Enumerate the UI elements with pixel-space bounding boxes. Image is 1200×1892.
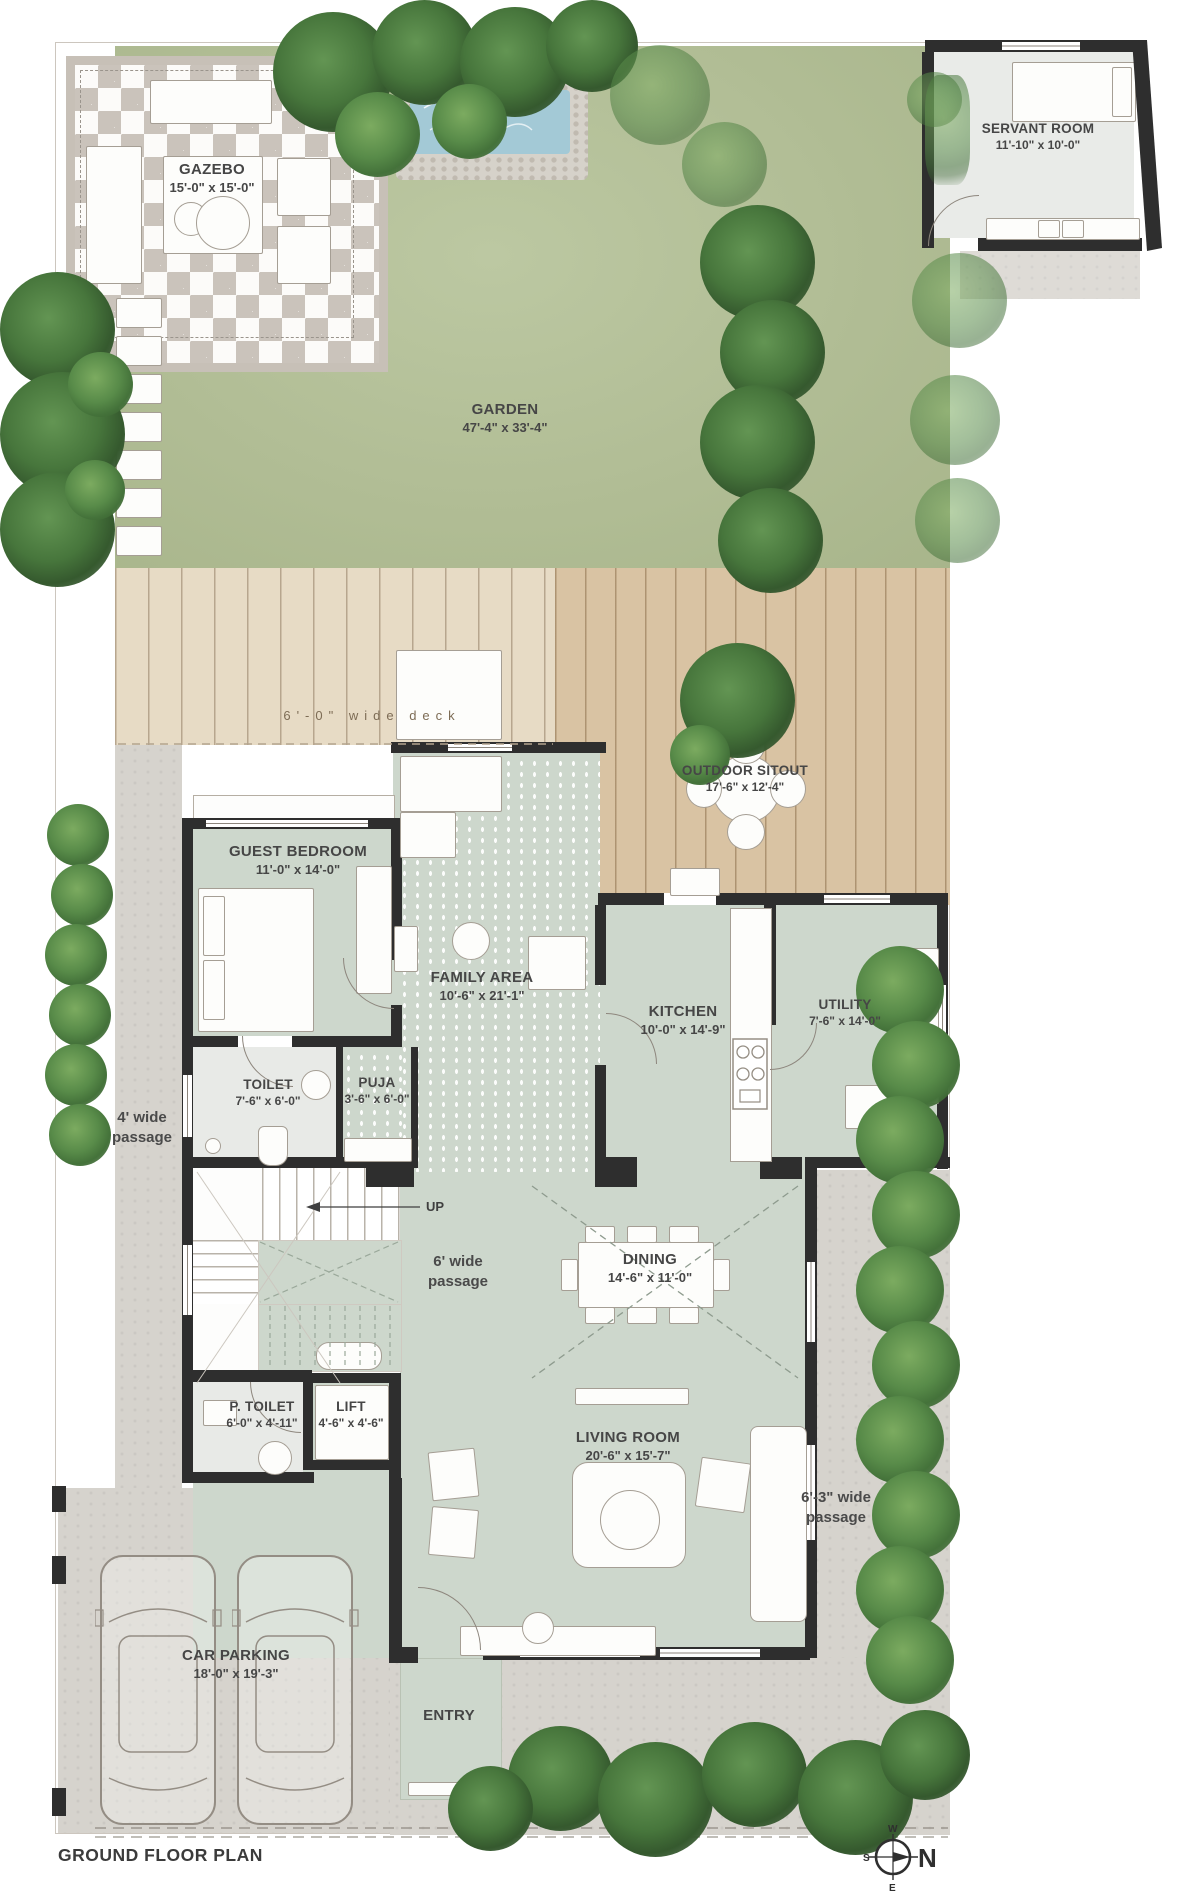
label-deck: 6'-0" wide deck [283, 708, 460, 723]
label-entry: ENTRY [423, 1706, 475, 1726]
label-p-toilet: P. TOILET 6'-0" x 4'-11" [226, 1398, 297, 1431]
hedge-icon [856, 1246, 944, 1334]
window-seat [460, 1626, 656, 1656]
label-up: UP [426, 1199, 444, 1214]
label-gazebo: GAZEBO 15'-0" x 15'-0" [169, 160, 254, 196]
kitchen-counter [730, 908, 772, 1162]
wall [52, 1556, 66, 1584]
chair [585, 1307, 615, 1324]
tree-icon [718, 488, 823, 593]
planter [116, 298, 162, 328]
hedge-icon [51, 864, 113, 926]
window [183, 1245, 192, 1315]
tree-icon [65, 460, 125, 520]
label-passage-left: 4' wide passage [97, 1108, 187, 1149]
family-sofa [400, 756, 502, 812]
chair [669, 1307, 699, 1324]
compass-north: N [918, 1843, 937, 1873]
hedge-icon [872, 1321, 960, 1409]
hedge-icon [45, 924, 107, 986]
basin-icon [301, 1070, 331, 1100]
tv-unit [394, 926, 418, 972]
label-lift: LIFT 4'-6" x 4'-6" [318, 1398, 383, 1431]
servant-pillow [1112, 67, 1132, 117]
pillow [203, 896, 225, 956]
ground-floor-plan: GAZEBO 15'-0" x 15'-0" SERVANT ROOM 11'-… [0, 0, 1200, 1892]
tree-icon [912, 253, 1007, 348]
armchair [695, 1457, 751, 1513]
wall [336, 1047, 343, 1157]
chair [627, 1307, 657, 1324]
family-chaise [400, 812, 456, 858]
label-servant-room: SERVANT ROOM 11'-10" x 10'-0" [982, 120, 1095, 153]
armchair [428, 1506, 479, 1559]
stair-bench [316, 1342, 382, 1370]
hedge-icon [856, 1096, 944, 1184]
side-table [522, 1612, 554, 1644]
wall [303, 1373, 313, 1470]
label-dining: DINING 14'-6" x 11'-0" [608, 1250, 692, 1286]
gazebo-bench [150, 80, 272, 124]
family-armchair [528, 936, 586, 990]
chair [585, 1226, 615, 1243]
gazebo-table-large [196, 196, 250, 250]
hedge-icon [856, 1396, 944, 1484]
hedge-icon [872, 1171, 960, 1259]
tree-icon [335, 92, 420, 177]
chair [627, 1226, 657, 1243]
window [824, 895, 890, 903]
window [206, 820, 368, 827]
tree-icon [448, 1766, 533, 1851]
planter [116, 450, 162, 480]
wall [303, 1373, 399, 1383]
pillow [203, 960, 225, 1020]
tree-icon [702, 1722, 807, 1827]
wall [303, 1460, 399, 1470]
sitout-chair [727, 814, 765, 850]
hedge-icon [872, 1471, 960, 1559]
wc-icon [258, 1126, 288, 1166]
wall [595, 905, 606, 985]
window [807, 1262, 815, 1342]
tree-icon [598, 1742, 713, 1857]
tree-icon [700, 385, 815, 500]
hedge-icon [45, 1044, 107, 1106]
chair [669, 1226, 699, 1243]
stair-landing [258, 1240, 402, 1306]
planter [116, 526, 162, 556]
puja-shelf [344, 1138, 412, 1162]
tree-icon [910, 375, 1000, 465]
label-toilet: TOILET 7'-6" x 6'-0" [235, 1076, 300, 1109]
compass-east: E [889, 1883, 896, 1892]
label-family-area: FAMILY AREA 10'-6" x 21'-1" [431, 968, 534, 1004]
label-kitchen: KITCHEN 10'-0" x 14'-9" [640, 1002, 725, 1038]
label-outdoor-sitout: OUTDOOR SITOUT 17'-6" x 12'-4" [682, 762, 808, 795]
wall [389, 1373, 401, 1480]
tree-icon [682, 122, 767, 207]
tree-icon [610, 45, 710, 145]
wall [411, 1047, 418, 1157]
label-guest-bedroom: GUEST BEDROOM 11'-0" x 14'-0" [229, 842, 367, 878]
tree-icon [68, 352, 133, 417]
coffee-table [600, 1490, 660, 1550]
label-car-parking: CAR PARKING 18'-0" x 19'-3" [182, 1646, 290, 1682]
hedge-icon [925, 75, 970, 185]
wall [182, 1472, 314, 1483]
hedge-icon [47, 804, 109, 866]
wc-icon [258, 1441, 292, 1475]
console [575, 1388, 689, 1405]
wall [52, 1788, 66, 1816]
gazebo-chair [277, 158, 331, 216]
round-chair [452, 922, 490, 960]
deck-sofa [396, 650, 502, 740]
sink-icon [1038, 220, 1060, 238]
label-living-room: LIVING ROOM 20'-6" x 15'-7" [576, 1428, 680, 1464]
label-passage-center: 6' wide passage [413, 1252, 503, 1293]
label-utility: UTILITY 7'-6" x 14'-0" [809, 996, 881, 1029]
shower-icon [205, 1138, 221, 1154]
deck-counter [670, 868, 720, 896]
tree-icon [432, 84, 507, 159]
tree-icon [915, 478, 1000, 563]
label-garden: GARDEN 47'-4" x 33'-4" [462, 400, 547, 436]
wall [595, 1065, 606, 1157]
chair [713, 1259, 730, 1291]
window [1002, 42, 1080, 50]
compass-south: S [863, 1853, 870, 1864]
plan-title: GROUND FLOOR PLAN [58, 1845, 263, 1866]
sink-icon [1062, 220, 1084, 238]
hedge-icon [866, 1616, 954, 1704]
armchair [428, 1448, 480, 1502]
hedge-icon [872, 1021, 960, 1109]
window [448, 744, 512, 751]
tree-icon [880, 1710, 970, 1800]
wall [389, 1647, 418, 1663]
wall [182, 818, 193, 1483]
chair [561, 1259, 578, 1291]
gazebo-sofa [86, 146, 142, 284]
hedge-icon [49, 984, 111, 1046]
window [660, 1649, 760, 1657]
wall [595, 1157, 637, 1187]
label-passage-right: 6'-3" wide passage [791, 1488, 881, 1529]
wall [52, 1486, 66, 1512]
gazebo-chair [277, 226, 331, 284]
label-puja: PUJA 3'-6" x 6'-0" [344, 1074, 409, 1107]
wall [182, 1370, 312, 1382]
stair-treads-side [193, 1240, 258, 1304]
wall [389, 1478, 402, 1660]
